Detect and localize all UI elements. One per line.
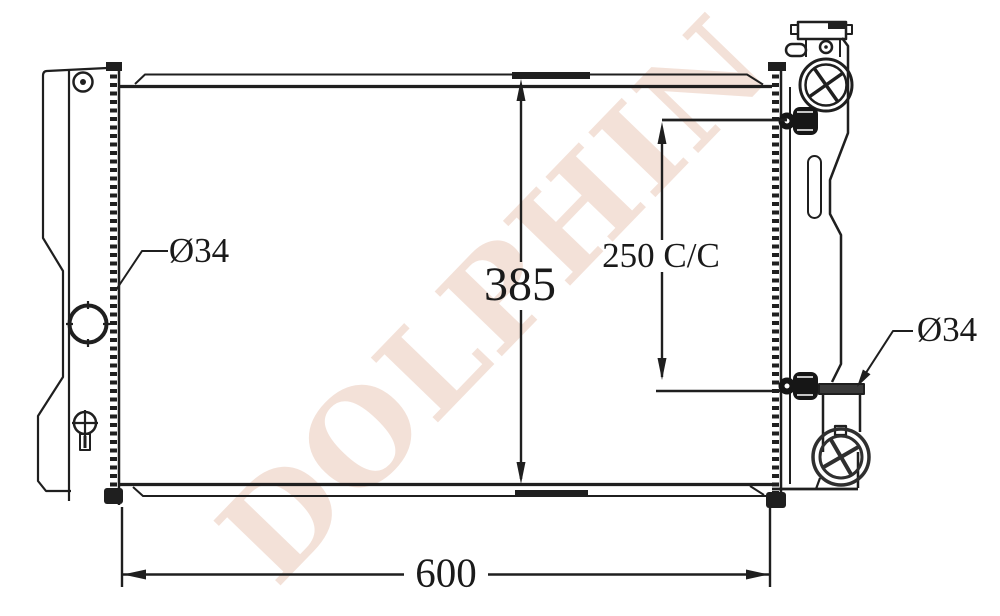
left-bracket bbox=[38, 68, 110, 501]
dimension-label-left-pipe-diameter: Ø34 bbox=[169, 233, 229, 268]
outlet-tube bbox=[813, 384, 869, 489]
dimension-label-overall-width: 600 bbox=[415, 553, 477, 594]
overflow-tube bbox=[786, 44, 806, 56]
top-center-tab bbox=[512, 72, 590, 79]
core-edges bbox=[118, 72, 772, 497]
dimension-label-core-height: 385 bbox=[484, 261, 556, 309]
leader-left-pipe bbox=[116, 251, 168, 290]
filler-opening bbox=[800, 59, 852, 111]
left-pipe-opening bbox=[66, 301, 110, 347]
radiator-drawing-canvas: DOLPHIN bbox=[0, 0, 1000, 616]
filler-neck bbox=[786, 22, 852, 111]
mounting-peg-center bbox=[80, 79, 86, 85]
tank-slot bbox=[808, 156, 821, 218]
right-tank bbox=[772, 38, 858, 489]
drain-plug bbox=[72, 410, 98, 450]
leader-right-pipe bbox=[857, 331, 913, 387]
right-side-channel bbox=[766, 62, 786, 508]
dimension-label-port-spacing: 250 C/C bbox=[602, 238, 720, 273]
dimension-label-right-pipe-diameter: Ø34 bbox=[917, 312, 977, 347]
bottom-center-tab bbox=[515, 490, 588, 497]
outlet-opening bbox=[813, 429, 869, 485]
lower-hose-fitting bbox=[779, 372, 819, 400]
